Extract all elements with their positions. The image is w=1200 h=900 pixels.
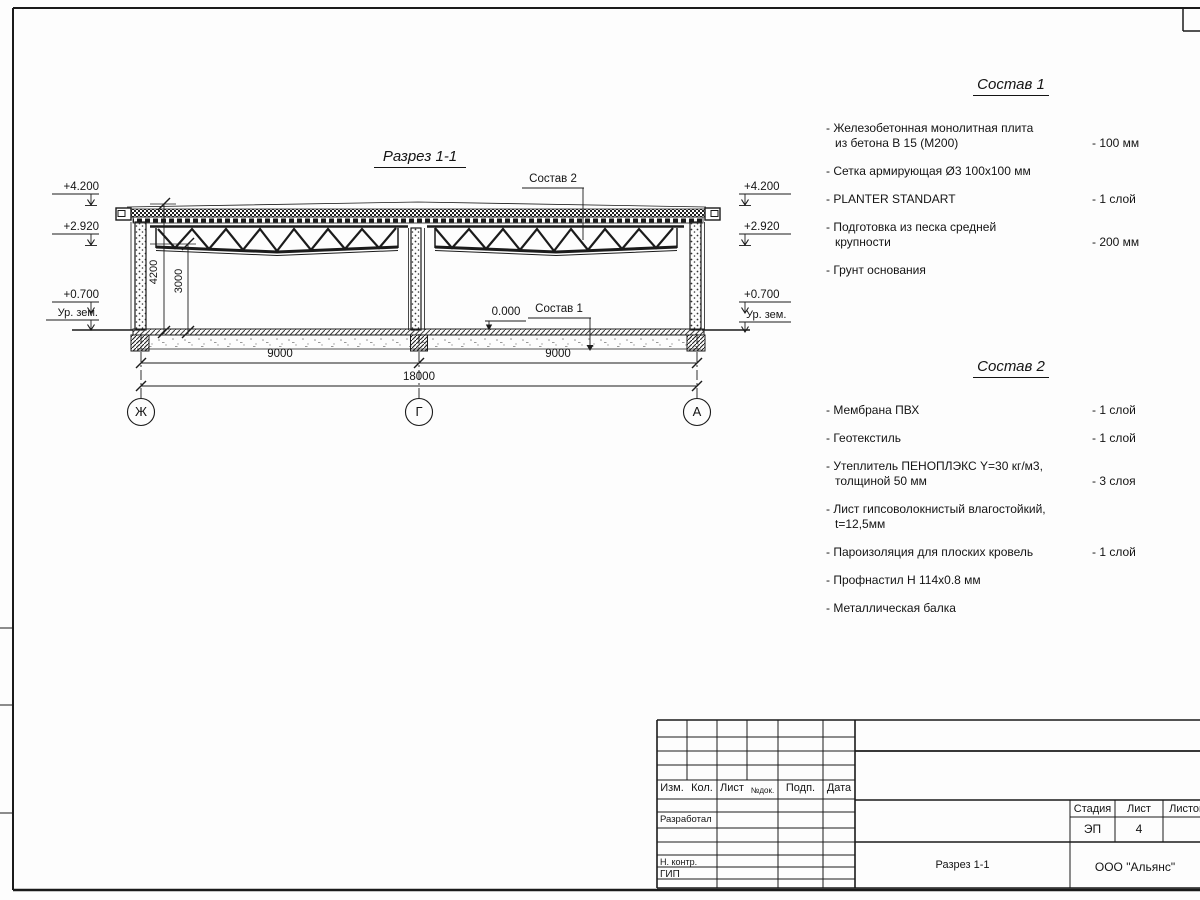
list-item: - Пароизоляция для плоских кровель - 1 с… <box>826 545 1196 560</box>
wall-right <box>690 222 705 330</box>
wall-left <box>131 222 146 330</box>
list-item: - Профнастил Н 114х0.8 мм <box>826 573 1196 588</box>
list-item: - Геотекстиль - 1 слой <box>826 431 1196 446</box>
drawing-sheet: Разрез 1-1 +4.200 +2.920 +0.700 Ур. зем.… <box>0 0 1200 900</box>
level-mark-top-right: +4.200 <box>744 181 791 193</box>
titleblock-col-podp: Подп. <box>778 782 823 794</box>
level-mark-mid-right: +2.920 <box>744 221 791 233</box>
sostav2-list: Состав 2 - Мембрана ПВХ - 1 слой - Геоте… <box>826 358 1196 629</box>
list-item: - Мембрана ПВХ - 1 слой <box>826 403 1196 418</box>
titleblock-sheet-value: 4 <box>1115 822 1163 836</box>
titleblock-row-gip: ГИП <box>660 869 680 880</box>
list-item: - PLANTER STANDART - 1 слой <box>826 192 1196 207</box>
roof-assembly <box>116 202 720 223</box>
list-item: - Лист гипсоволокнистый влагостойкий, t=… <box>826 502 1196 532</box>
sostav1-list: Состав 1 - Железобетонная монолитная пли… <box>826 76 1196 291</box>
zero-level-label: 0.000 <box>485 306 527 318</box>
list-item: - Грунт основания <box>826 263 1196 278</box>
titleblock-row-developed: Разработал <box>660 814 712 825</box>
leader-label-sostav1: Состав 1 <box>528 303 590 315</box>
dim-span1: 9000 <box>250 348 310 360</box>
ground-level-label-left: Ур. зем. <box>46 307 98 319</box>
titleblock-col-izm: Изм. <box>656 782 688 794</box>
titleblock-col-ndok: №док. <box>747 786 778 795</box>
axis-label-g: Г <box>408 404 430 419</box>
column-center <box>409 228 425 330</box>
level-mark-top-left: +4.200 <box>52 181 99 193</box>
titleblock-stage-label: Стадия <box>1070 803 1115 815</box>
titleblock-stage-value: ЭП <box>1070 822 1115 836</box>
ground-level-label-right: Ур. зем. <box>746 309 798 321</box>
dim-total: 18000 <box>389 371 449 383</box>
sostav1-title: Состав 1 <box>826 76 1196 93</box>
titleblock-col-kol: Кол. <box>687 782 717 794</box>
level-mark-mid-left: +2.920 <box>52 221 99 233</box>
section-title: Разрез 1-1 <box>374 148 466 168</box>
leader-label-sostav2: Состав 2 <box>522 173 584 185</box>
list-item: - Сетка армирующая Ø3 100х100 мм <box>826 164 1196 179</box>
level-mark-low-left: +0.700 <box>52 289 99 301</box>
floor-slab <box>131 329 705 351</box>
axis-label-zh: Ж <box>130 404 152 419</box>
truss-left <box>150 227 408 256</box>
titleblock-sheets-label: Листов <box>1163 803 1200 815</box>
titleblock-col-data: Дата <box>823 782 855 794</box>
list-item: - Железобетонная монолитная плита из бет… <box>826 121 1196 151</box>
titleblock-row-ncontr: Н. контр. <box>660 857 697 867</box>
list-item: - Металлическая балка <box>826 601 1196 616</box>
titleblock-doc-title: Разрез 1-1 <box>855 859 1070 871</box>
titleblock-company: ООО "Альянс" <box>1070 860 1200 874</box>
truss-right <box>427 227 684 256</box>
sostav2-title: Состав 2 <box>826 358 1196 375</box>
level-mark-low-right: +0.700 <box>744 289 791 301</box>
list-item: - Утеплитель ПЕНОПЛЭКС Y=30 кг/м3, толщи… <box>826 459 1196 489</box>
axis-label-a: А <box>686 404 708 419</box>
titleblock-col-list: Лист <box>716 782 748 794</box>
dim-3000: 3000 <box>173 261 189 301</box>
list-item: - Подготовка из песка средней крупности … <box>826 220 1196 250</box>
titleblock-sheet-label: Лист <box>1115 803 1163 815</box>
dim-4200: 4200 <box>148 252 164 292</box>
dim-span2: 9000 <box>528 348 588 360</box>
